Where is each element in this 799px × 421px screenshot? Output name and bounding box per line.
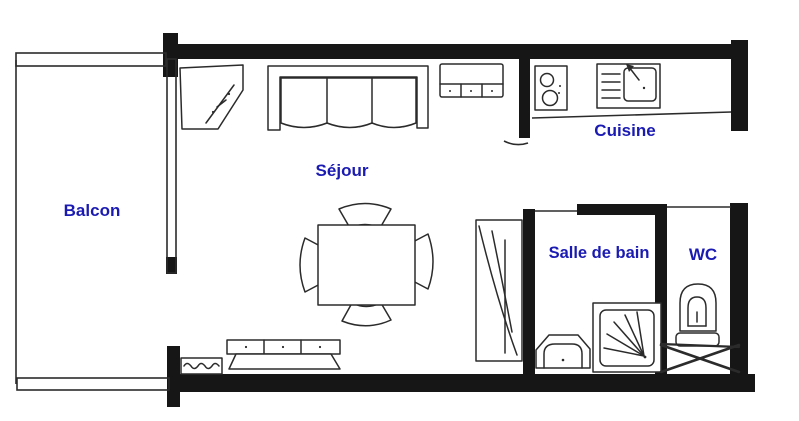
floor-plan-page: Balcon Séjour Cuisine Salle de bain WC — [0, 0, 799, 421]
corner-unit-knob — [212, 111, 214, 113]
wardrobe — [476, 220, 522, 361]
low-cabinet-knob — [470, 90, 472, 92]
sofa — [268, 66, 428, 130]
room-label-salle-de-bain: Salle de bain — [549, 244, 650, 262]
sofa-cushions — [281, 78, 416, 128]
sideboard-knob — [319, 346, 321, 348]
shower-drain — [644, 356, 647, 359]
bathroom-top-wall — [577, 204, 666, 215]
floor-plan-drawing: Balcon Séjour Cuisine Salle de bain WC — [0, 0, 799, 421]
sink-drain — [643, 87, 645, 89]
sideboard — [227, 340, 340, 369]
room-label-balcon: Balcon — [64, 201, 121, 220]
room-label-sejour: Séjour — [316, 161, 369, 180]
bottom-wall — [167, 374, 755, 392]
radiator — [181, 358, 222, 374]
low-cabinet — [440, 64, 503, 97]
room-label-wc: WC — [689, 245, 717, 264]
shower — [593, 303, 661, 372]
duct-top-edge — [661, 344, 739, 347]
kitchen-right-wall — [731, 40, 748, 131]
low-cabinet-knob — [491, 90, 493, 92]
sejour-cuisine-partition — [519, 56, 530, 138]
balcony-top-railing — [16, 53, 166, 66]
balcony-bottom-railing — [17, 378, 169, 390]
bathroom-left-wall — [523, 209, 535, 375]
balcony-door-lower-wall — [167, 346, 180, 407]
dining-set — [300, 204, 433, 326]
wc-right-wall — [730, 203, 748, 375]
corner-unit-body — [180, 65, 243, 129]
kitchen-counter-edge — [532, 112, 731, 118]
room-label-cuisine: Cuisine — [594, 121, 655, 140]
hob-knob — [558, 92, 560, 94]
washbasin-drain — [562, 359, 565, 362]
hob — [535, 66, 567, 110]
low-cabinet-knob — [449, 90, 451, 92]
radiator-body — [181, 358, 222, 374]
sideboard-front — [229, 354, 340, 369]
toilet — [676, 284, 719, 346]
dining-table — [318, 225, 415, 305]
hob-body — [535, 66, 567, 110]
sink-basin — [624, 68, 656, 101]
balcony-window-wall — [167, 59, 176, 273]
sideboard-knob — [245, 346, 247, 348]
hob-knob — [559, 85, 561, 87]
top-wall — [163, 44, 748, 59]
duct — [661, 344, 739, 372]
corner-unit-knob — [228, 93, 230, 95]
chair — [342, 303, 391, 326]
sideboard-knob — [282, 346, 284, 348]
sink-unit — [597, 64, 660, 108]
low-cabinet-body — [440, 64, 503, 97]
toilet-bowl-outer — [680, 284, 716, 331]
corner-unit — [180, 65, 243, 129]
partition-end-mark — [504, 141, 528, 145]
washbasin — [536, 335, 590, 368]
